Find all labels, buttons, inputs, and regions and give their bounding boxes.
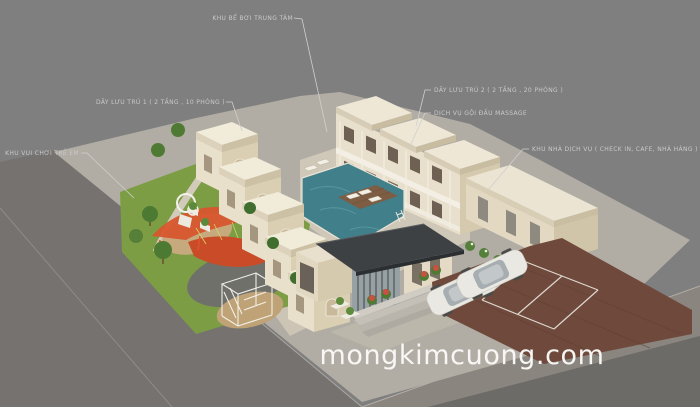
label-service: KHU NHÀ DỊCH VỤ ( CHECK IN, CAFE, NHÀ HÀ… <box>532 146 698 153</box>
watermark-text: mongkimcuong.com <box>319 340 604 371</box>
label-playground: KHU VUI CHƠI TRẺ EM <box>5 149 79 157</box>
label-row1: DÃY LƯU TRÚ 1 ( 2 TẦNG , 10 PHÒNG ) <box>96 98 225 106</box>
label-massage: DỊCH VỤ GỘI ĐẦU MASSAGE <box>434 109 527 117</box>
label-row2: DÃY LƯU TRÚ 2 ( 2 TẦNG , 20 PHÒNG ) <box>434 86 563 94</box>
label-pool: KHU BỂ BƠI TRUNG TÂM <box>212 14 293 22</box>
site-render-canvas: KHU BỂ BƠI TRUNG TÂM DÃY LƯU TRÚ 1 ( 2 T… <box>0 0 700 407</box>
architectural-render: KHU BỂ BƠI TRUNG TÂM DÃY LƯU TRÚ 1 ( 2 T… <box>0 0 700 407</box>
